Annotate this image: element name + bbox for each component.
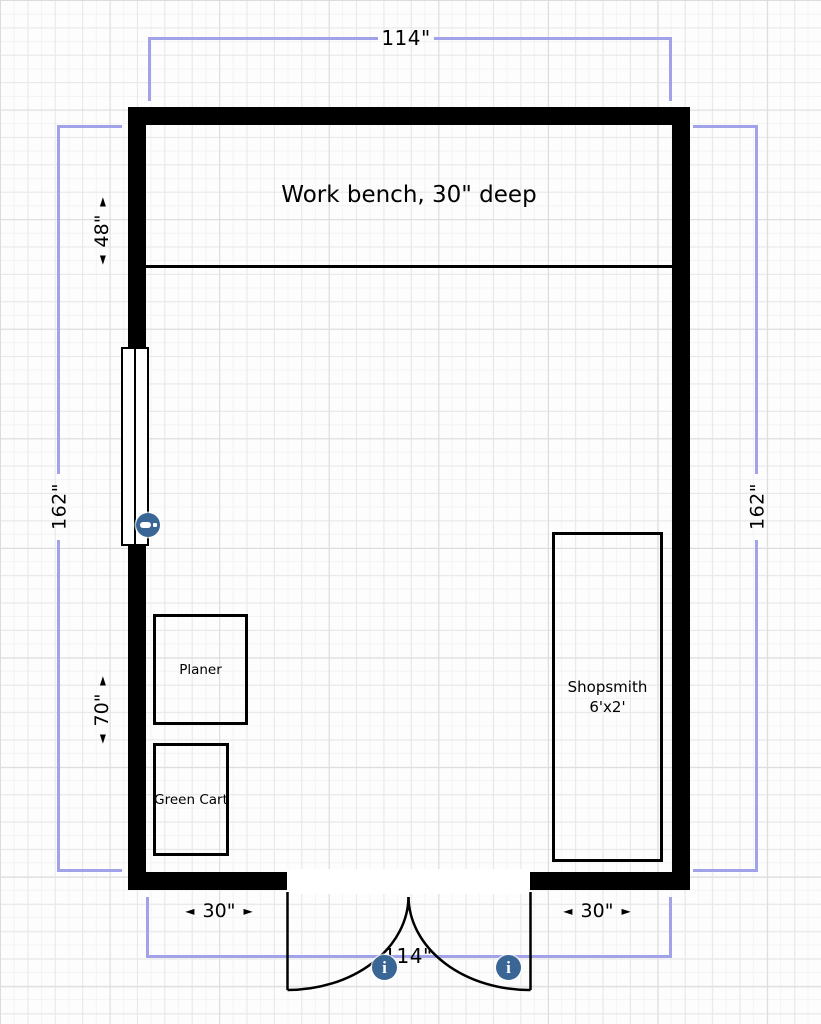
dim-top-extension-right: [669, 37, 672, 101]
dim-bottom-left-value: 30": [203, 900, 236, 922]
arrow-right-icon: ►: [243, 905, 252, 917]
wall-top[interactable]: [128, 107, 690, 125]
dim-bottom-extension-left: [146, 897, 149, 958]
dim-top-extension-left: [148, 37, 151, 101]
window-marker-glyph-dot: [153, 523, 157, 527]
workbench[interactable]: Work bench, 30" deep: [146, 125, 672, 268]
floor-plan-canvas: 114" 162" 162" 114" Work bench, 30" deep…: [0, 0, 821, 1024]
arrow-left-icon: ◄: [563, 905, 572, 917]
info-icon-left[interactable]: i: [372, 955, 397, 980]
dim-bottom-left-clearance[interactable]: ◄ 30" ►: [164, 898, 274, 924]
dim-top-line-left: [148, 37, 378, 40]
shopsmith[interactable]: Shopsmith 6'x2': [552, 532, 663, 862]
dim-left-extension-bottom: [57, 869, 122, 872]
info-icon-right[interactable]: i: [496, 955, 521, 980]
door-opening: [287, 869, 530, 894]
planer-label: Planer: [179, 662, 222, 678]
dim-right-label[interactable]: 162": [745, 472, 770, 542]
dim-left-line-bottom: [57, 540, 60, 872]
window-marker-glyph: [140, 522, 151, 528]
green-cart-label: Green Cart: [154, 792, 228, 808]
dim-top-label[interactable]: 114": [376, 25, 436, 50]
dim-left-extension-top: [57, 125, 122, 128]
arrow-left-icon: ◄: [96, 734, 108, 743]
dim-bottom-extension-right: [669, 897, 672, 958]
shopsmith-label-line2: 6'x2': [589, 697, 625, 717]
arrow-left-icon: ◄: [96, 255, 108, 264]
dim-right-line-top: [755, 125, 758, 474]
dim-top-line-right: [434, 37, 672, 40]
dim-right-line-bottom: [755, 540, 758, 872]
wall-right[interactable]: [672, 107, 690, 890]
dim-left-label[interactable]: 162": [47, 472, 72, 542]
wall-bottom-right[interactable]: [530, 872, 690, 890]
dim-left-lower[interactable]: ◄ 70" ►: [89, 655, 115, 765]
dim-left-lower-value: 70": [91, 694, 113, 727]
arrow-left-icon: ◄: [185, 905, 194, 917]
shopsmith-label-line1: Shopsmith: [568, 677, 648, 697]
dim-bottom-right-value: 30": [581, 900, 614, 922]
arrow-right-icon: ►: [96, 197, 108, 206]
arrow-right-icon: ►: [96, 676, 108, 685]
info-icon-glyph: i: [506, 958, 511, 978]
wall-bottom-left[interactable]: [128, 872, 287, 890]
workbench-label: Work bench, 30" deep: [281, 182, 536, 208]
dim-bench-depth[interactable]: ◄ 48" ►: [89, 176, 115, 286]
dim-bench-depth-value: 48": [91, 215, 113, 248]
window-marker-icon[interactable]: [136, 513, 160, 537]
arrow-right-icon: ►: [621, 905, 630, 917]
dim-bottom-right-clearance[interactable]: ◄ 30" ►: [542, 898, 652, 924]
dim-right-extension-top: [693, 125, 758, 128]
info-icon-glyph: i: [382, 958, 387, 978]
planer[interactable]: Planer: [153, 614, 248, 725]
green-cart[interactable]: Green Cart: [153, 743, 229, 856]
dim-right-extension-bottom: [693, 869, 758, 872]
dim-left-line-top: [57, 125, 60, 474]
window-mullion: [134, 349, 136, 544]
